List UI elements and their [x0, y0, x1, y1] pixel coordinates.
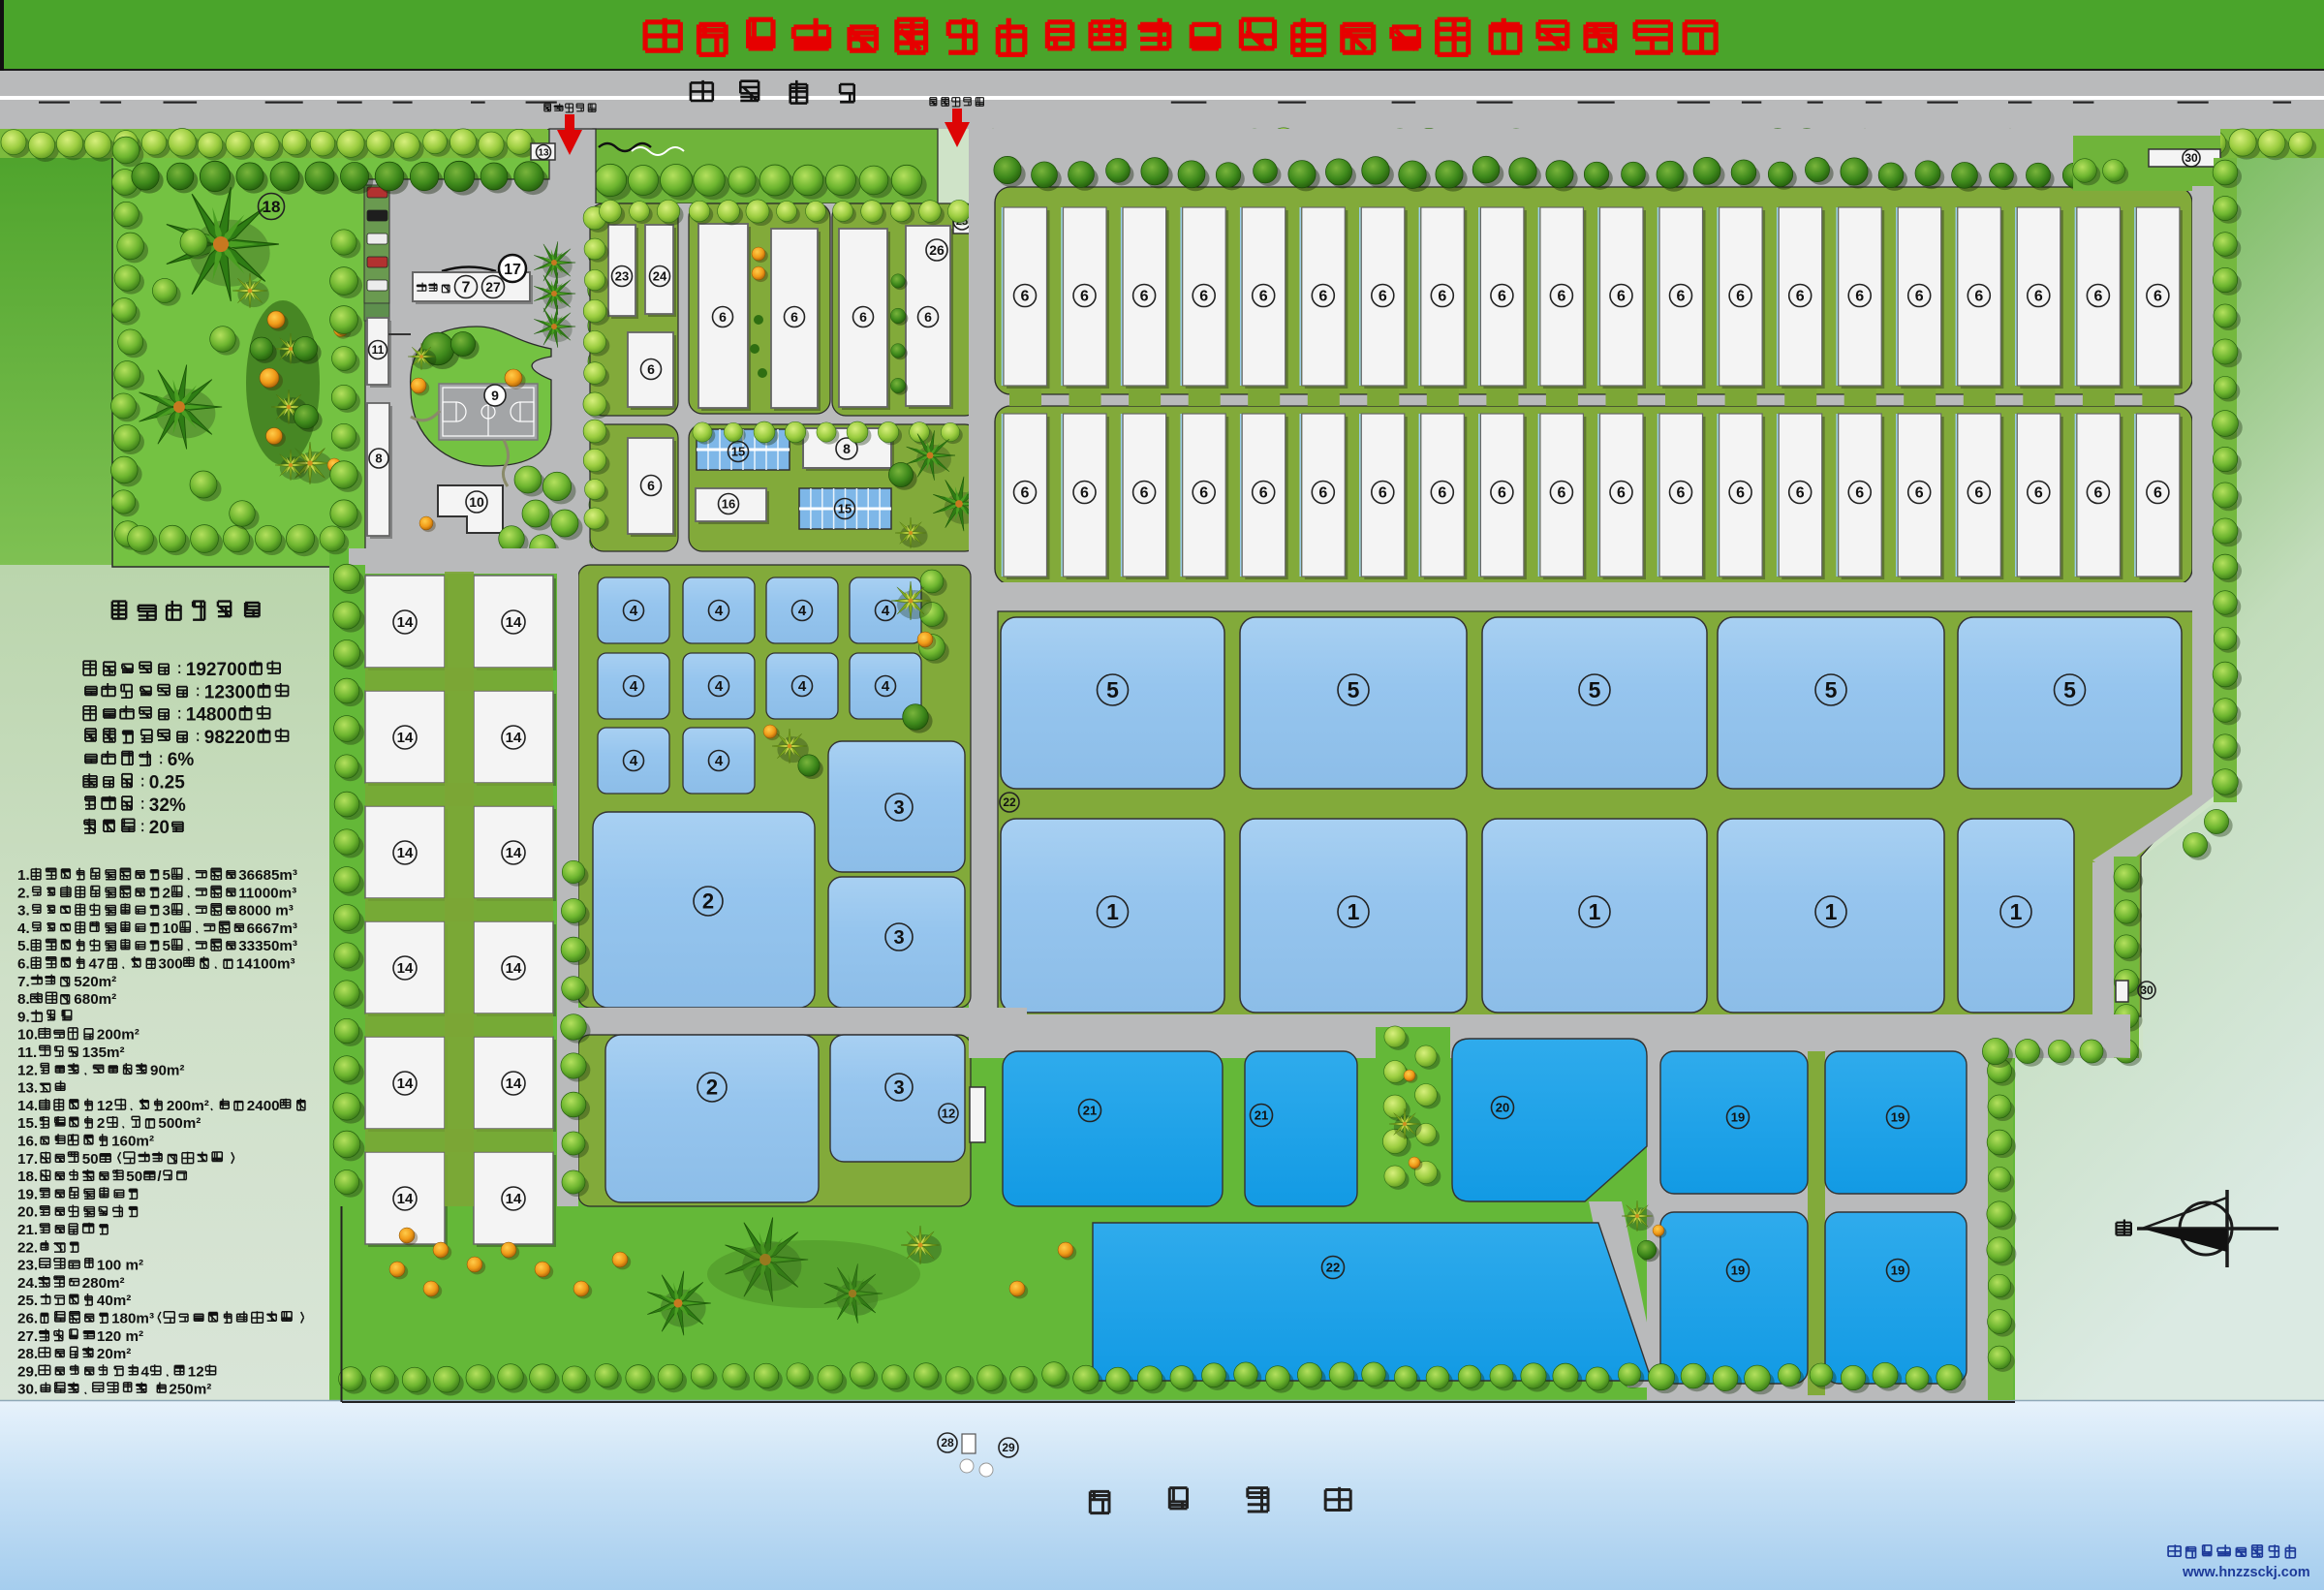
svg-text:200m²: 200m² — [167, 1098, 209, 1114]
svg-text:6.: 6. — [17, 956, 30, 973]
svg-text:15: 15 — [731, 445, 745, 459]
svg-text:180m³: 180m³ — [111, 1311, 154, 1327]
svg-text:2400: 2400 — [247, 1098, 280, 1114]
svg-text:10.: 10. — [17, 1027, 38, 1044]
svg-text:6: 6 — [1796, 485, 1805, 502]
svg-text:4: 4 — [715, 753, 724, 769]
svg-text:10: 10 — [469, 494, 484, 510]
svg-text:6: 6 — [1021, 485, 1030, 502]
svg-text:27: 27 — [485, 279, 501, 295]
svg-text:25.: 25. — [17, 1293, 38, 1309]
svg-text:1: 1 — [1825, 899, 1838, 924]
svg-text:1: 1 — [1106, 899, 1119, 924]
svg-text:200m²: 200m² — [97, 1027, 139, 1044]
svg-text:6%: 6% — [168, 750, 195, 770]
svg-text:6: 6 — [1199, 485, 1208, 502]
svg-text:6: 6 — [647, 478, 655, 493]
svg-text:12: 12 — [188, 1363, 204, 1380]
svg-text:4: 4 — [715, 678, 724, 695]
svg-text:98220: 98220 — [204, 728, 256, 748]
svg-text:6: 6 — [1259, 485, 1268, 502]
svg-text:6: 6 — [1379, 289, 1387, 305]
svg-text:14: 14 — [397, 845, 414, 861]
svg-text:13.: 13. — [17, 1080, 38, 1097]
svg-text:6: 6 — [1974, 289, 1983, 305]
svg-text:4: 4 — [715, 603, 724, 619]
svg-text:6: 6 — [1915, 289, 1924, 305]
svg-text:50: 50 — [126, 1169, 142, 1185]
svg-text:6: 6 — [1021, 289, 1030, 305]
svg-text:160m²: 160m² — [111, 1134, 154, 1150]
svg-text:6: 6 — [1557, 485, 1565, 502]
svg-text:18.: 18. — [17, 1169, 38, 1185]
svg-text:6: 6 — [1259, 289, 1268, 305]
svg-text:30.: 30. — [17, 1382, 38, 1398]
svg-text:6: 6 — [1855, 289, 1864, 305]
svg-text:14: 14 — [397, 1076, 414, 1092]
svg-text:9: 9 — [491, 388, 499, 403]
svg-text:21: 21 — [1255, 1108, 1268, 1123]
svg-text:17: 17 — [504, 262, 521, 278]
svg-text:3: 3 — [893, 797, 904, 819]
svg-text:7: 7 — [462, 280, 471, 296]
svg-text:2.: 2. — [17, 885, 30, 901]
svg-text:12: 12 — [97, 1098, 113, 1114]
svg-text:19: 19 — [1731, 1110, 1745, 1125]
svg-text:90m²: 90m² — [150, 1062, 184, 1078]
svg-text:19.: 19. — [17, 1186, 38, 1202]
svg-text:680m²: 680m² — [74, 991, 116, 1008]
svg-text:2: 2 — [702, 889, 714, 914]
svg-text:3: 3 — [893, 1077, 904, 1099]
svg-text:23.: 23. — [17, 1258, 38, 1274]
svg-text:6: 6 — [1379, 485, 1387, 502]
svg-text:6: 6 — [1318, 485, 1327, 502]
svg-text:26: 26 — [929, 242, 945, 258]
svg-text:19: 19 — [1891, 1263, 1905, 1278]
svg-text:4: 4 — [630, 753, 638, 769]
svg-text:6: 6 — [1677, 485, 1686, 502]
svg-text:6: 6 — [859, 309, 867, 325]
svg-text:15: 15 — [838, 502, 852, 516]
svg-text:6: 6 — [1438, 289, 1446, 305]
svg-text:17.: 17. — [17, 1151, 38, 1168]
svg-text:6: 6 — [1915, 485, 1924, 502]
svg-text:40m²: 40m² — [97, 1293, 131, 1309]
svg-text:5: 5 — [1825, 677, 1838, 702]
svg-text:4: 4 — [630, 678, 638, 695]
svg-text:20: 20 — [149, 818, 170, 838]
svg-text:11000m³: 11000m³ — [238, 885, 296, 901]
svg-text:3.: 3. — [17, 903, 30, 920]
svg-text:3: 3 — [893, 927, 904, 949]
svg-text:14100m³: 14100m³ — [236, 956, 295, 973]
svg-text:280m²: 280m² — [82, 1275, 125, 1292]
svg-text:6: 6 — [2154, 485, 2162, 502]
svg-text:14: 14 — [506, 960, 522, 977]
svg-text:12300: 12300 — [204, 682, 256, 702]
svg-text:500m²: 500m² — [158, 1115, 201, 1132]
svg-text:2: 2 — [97, 1115, 105, 1132]
svg-text:4: 4 — [798, 678, 807, 695]
svg-text:6: 6 — [2034, 485, 2043, 502]
svg-text:32%: 32% — [149, 795, 186, 816]
svg-text:5: 5 — [1348, 677, 1360, 702]
svg-text:192700: 192700 — [186, 660, 247, 680]
svg-text:0.25: 0.25 — [149, 773, 185, 794]
svg-text:1: 1 — [1348, 899, 1360, 924]
svg-text:24: 24 — [653, 269, 667, 284]
svg-text:6: 6 — [1498, 289, 1506, 305]
svg-text:5: 5 — [1106, 677, 1119, 702]
svg-text:21.: 21. — [17, 1222, 38, 1238]
svg-text:6: 6 — [1617, 485, 1626, 502]
svg-text:www.hnzzsckj.com: www.hnzzsckj.com — [2182, 1565, 2310, 1580]
svg-text:14: 14 — [506, 730, 522, 746]
svg-text:6: 6 — [924, 309, 932, 325]
svg-text:11: 11 — [372, 343, 385, 357]
svg-text:13: 13 — [538, 148, 549, 159]
svg-text:9.: 9. — [17, 1009, 30, 1025]
svg-text:6: 6 — [1617, 289, 1626, 305]
svg-text:6: 6 — [790, 309, 798, 325]
svg-text:20: 20 — [1496, 1101, 1509, 1115]
svg-text:6: 6 — [647, 361, 655, 377]
svg-text:28: 28 — [941, 1436, 954, 1450]
svg-text:23: 23 — [615, 269, 629, 284]
svg-text:14: 14 — [506, 1076, 522, 1092]
svg-text:20m²: 20m² — [97, 1346, 131, 1362]
svg-text:6: 6 — [1140, 289, 1149, 305]
svg-text:5: 5 — [163, 867, 171, 884]
svg-text:2: 2 — [706, 1076, 718, 1100]
svg-text:6: 6 — [2034, 289, 2043, 305]
svg-text:4: 4 — [798, 603, 807, 619]
svg-text:520m²: 520m² — [74, 974, 116, 990]
svg-text:22.: 22. — [17, 1239, 38, 1256]
svg-text:30: 30 — [2185, 151, 2198, 165]
svg-text:4: 4 — [882, 603, 890, 619]
svg-text:19: 19 — [1731, 1263, 1745, 1278]
svg-text:7.: 7. — [17, 974, 30, 990]
svg-text:14.: 14. — [17, 1098, 38, 1114]
svg-text:8000 m³: 8000 m³ — [238, 903, 294, 920]
svg-text:6: 6 — [1318, 289, 1327, 305]
svg-text:6: 6 — [1796, 289, 1805, 305]
svg-text:5: 5 — [1589, 677, 1601, 702]
svg-text:47: 47 — [89, 956, 106, 973]
svg-text:1: 1 — [1589, 899, 1601, 924]
svg-text:5: 5 — [163, 938, 171, 954]
svg-text:10: 10 — [163, 920, 179, 937]
svg-text:50: 50 — [82, 1151, 99, 1168]
svg-text:26.: 26. — [17, 1311, 38, 1327]
svg-text:29: 29 — [1002, 1441, 1015, 1454]
svg-text:8.: 8. — [17, 991, 30, 1008]
svg-text:12.: 12. — [17, 1062, 38, 1078]
svg-text:6: 6 — [1498, 485, 1506, 502]
svg-text:6667m³: 6667m³ — [247, 920, 297, 937]
svg-text:14: 14 — [506, 614, 522, 631]
svg-text:22: 22 — [1326, 1261, 1340, 1275]
svg-text:6: 6 — [1080, 289, 1089, 305]
svg-text:19: 19 — [1891, 1110, 1905, 1125]
svg-text:5.: 5. — [17, 938, 30, 954]
svg-text:14: 14 — [397, 1191, 414, 1207]
svg-text:15.: 15. — [17, 1115, 38, 1132]
svg-text:120 m²: 120 m² — [97, 1328, 143, 1345]
svg-text:6: 6 — [1199, 289, 1208, 305]
svg-text:5: 5 — [2063, 677, 2076, 702]
svg-text:250m²: 250m² — [169, 1382, 211, 1398]
svg-text:6: 6 — [2154, 289, 2162, 305]
svg-text:4: 4 — [630, 603, 638, 619]
svg-text:8: 8 — [375, 452, 382, 466]
svg-text:3: 3 — [163, 903, 170, 920]
svg-text:4: 4 — [141, 1363, 150, 1380]
svg-text:21: 21 — [1083, 1104, 1097, 1118]
svg-text:6: 6 — [1974, 485, 1983, 502]
svg-text:6: 6 — [1736, 289, 1745, 305]
svg-text:8: 8 — [843, 441, 851, 456]
svg-text:16.: 16. — [17, 1134, 38, 1150]
svg-text:6: 6 — [719, 309, 727, 325]
svg-text:14800: 14800 — [186, 705, 237, 726]
svg-text:24.: 24. — [17, 1275, 38, 1292]
svg-text:18: 18 — [263, 198, 281, 216]
svg-text:20.: 20. — [17, 1204, 38, 1221]
svg-text:11.: 11. — [17, 1044, 37, 1061]
svg-text:6: 6 — [1140, 485, 1149, 502]
svg-text:6: 6 — [2093, 485, 2102, 502]
svg-text:135m²: 135m² — [82, 1044, 125, 1061]
svg-text:28.: 28. — [17, 1346, 38, 1362]
svg-text:16: 16 — [722, 497, 735, 512]
svg-text:14: 14 — [397, 730, 414, 746]
svg-text:1: 1 — [2010, 899, 2023, 924]
svg-text:6: 6 — [1557, 289, 1565, 305]
svg-text:6: 6 — [1080, 485, 1089, 502]
svg-text:22: 22 — [1003, 795, 1016, 809]
svg-text:36685m³: 36685m³ — [238, 867, 297, 884]
svg-text:6: 6 — [1677, 289, 1686, 305]
svg-text:100 m²: 100 m² — [97, 1258, 143, 1274]
svg-text:6: 6 — [2093, 289, 2102, 305]
svg-text:33350m³: 33350m³ — [238, 938, 297, 954]
svg-text:4: 4 — [882, 678, 890, 695]
svg-text:300: 300 — [158, 956, 182, 973]
svg-text:6: 6 — [1736, 485, 1745, 502]
svg-text:4.: 4. — [17, 920, 30, 937]
svg-text:14: 14 — [506, 845, 522, 861]
svg-text:14: 14 — [397, 614, 414, 631]
svg-text:27.: 27. — [17, 1328, 38, 1345]
svg-text:29.: 29. — [17, 1363, 38, 1380]
svg-text:30: 30 — [2140, 983, 2154, 997]
svg-text:1.: 1. — [17, 867, 30, 884]
svg-text:12: 12 — [942, 1107, 955, 1121]
svg-text:14: 14 — [397, 960, 414, 977]
svg-text:2: 2 — [163, 885, 170, 901]
svg-text:14: 14 — [506, 1191, 522, 1207]
svg-text:6: 6 — [1438, 485, 1446, 502]
svg-text:6: 6 — [1855, 485, 1864, 502]
